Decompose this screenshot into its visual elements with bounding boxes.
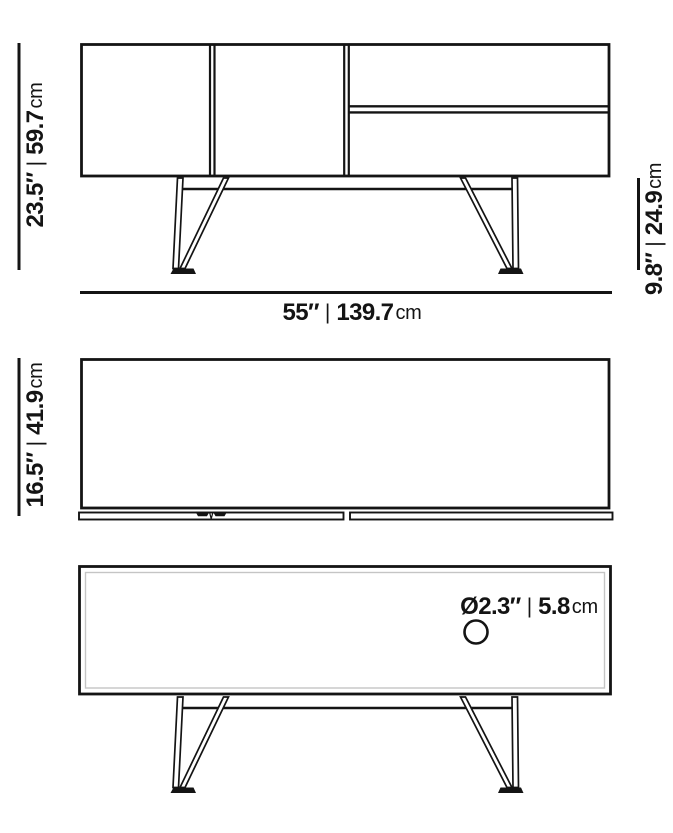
metric-unit: cm xyxy=(644,163,667,189)
cabinet-body-back xyxy=(80,567,611,695)
dimension-label-top-depth: 16.5″ | 41.9 cm xyxy=(21,335,51,535)
top-view xyxy=(19,358,613,520)
imperial-value: 9.8″ xyxy=(641,253,669,295)
dimension-label-front-width: 55″ | 139.7 cm xyxy=(252,298,452,328)
metric-unit: cm xyxy=(25,82,48,108)
separator: | xyxy=(24,161,48,166)
furniture-dimension-diagram: 23.5″ | 59.7 cm 9.8″ | 24.9 cm 55″ | 139… xyxy=(0,0,673,833)
metric-unit: cm xyxy=(25,362,48,388)
metric-value: 24.9 xyxy=(641,191,669,235)
separator: | xyxy=(24,441,48,446)
imperial-value: 23.5″ xyxy=(22,172,50,227)
metric-unit: cm xyxy=(395,302,421,325)
back-view-legs xyxy=(171,697,524,793)
dimension-label-leg-height: 9.8″ | 24.9 cm xyxy=(640,129,670,329)
imperial-value: Ø2.3″ xyxy=(460,593,521,621)
separator: | xyxy=(325,301,330,325)
metric-value: 59.7 xyxy=(22,111,50,155)
cable-hole xyxy=(465,621,488,644)
front-view-legs xyxy=(171,178,524,274)
cabinet-body-top xyxy=(82,360,610,509)
separator: | xyxy=(527,595,532,619)
dimension-label-cable-hole: Ø2.3″ | 5.8 cm xyxy=(429,592,629,622)
imperial-value: 16.5″ xyxy=(22,452,50,507)
metric-value: 5.8 xyxy=(538,593,570,621)
metric-unit: cm xyxy=(572,596,598,619)
metric-value: 139.7 xyxy=(336,299,393,327)
dimension-label-front-height: 23.5″ | 59.7 cm xyxy=(21,55,51,255)
metric-value: 41.9 xyxy=(22,391,50,435)
line-art-layer xyxy=(0,0,673,833)
imperial-value: 55″ xyxy=(283,299,319,327)
front-view xyxy=(19,43,639,293)
separator: | xyxy=(643,241,667,246)
front-edge-strip-right xyxy=(350,513,613,520)
